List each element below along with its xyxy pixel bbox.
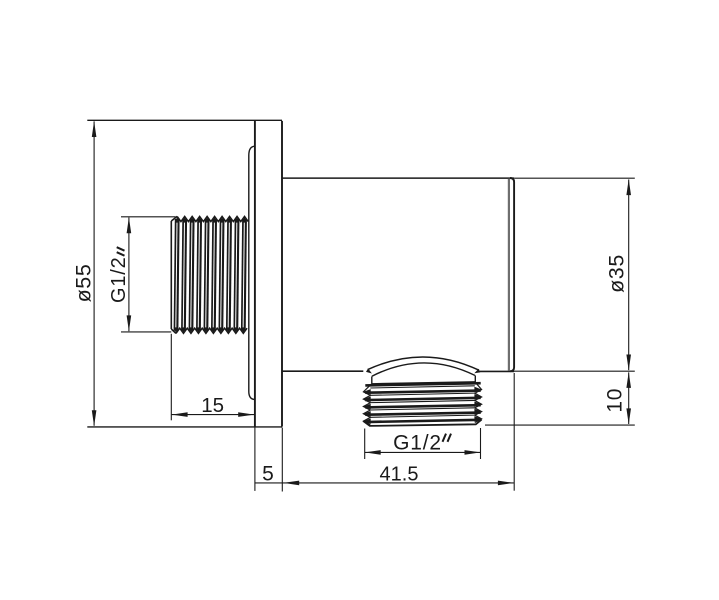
svg-text:ø35: ø35 xyxy=(605,254,629,293)
svg-text:G1/2: G1/2 xyxy=(393,432,442,455)
svg-text:ø55: ø55 xyxy=(72,264,96,303)
svg-text:G1/2: G1/2 xyxy=(108,256,130,303)
svg-text:15: 15 xyxy=(201,394,224,417)
svg-text:5: 5 xyxy=(262,463,274,486)
svg-text:10: 10 xyxy=(604,388,627,413)
svg-text:41.5: 41.5 xyxy=(380,463,419,485)
